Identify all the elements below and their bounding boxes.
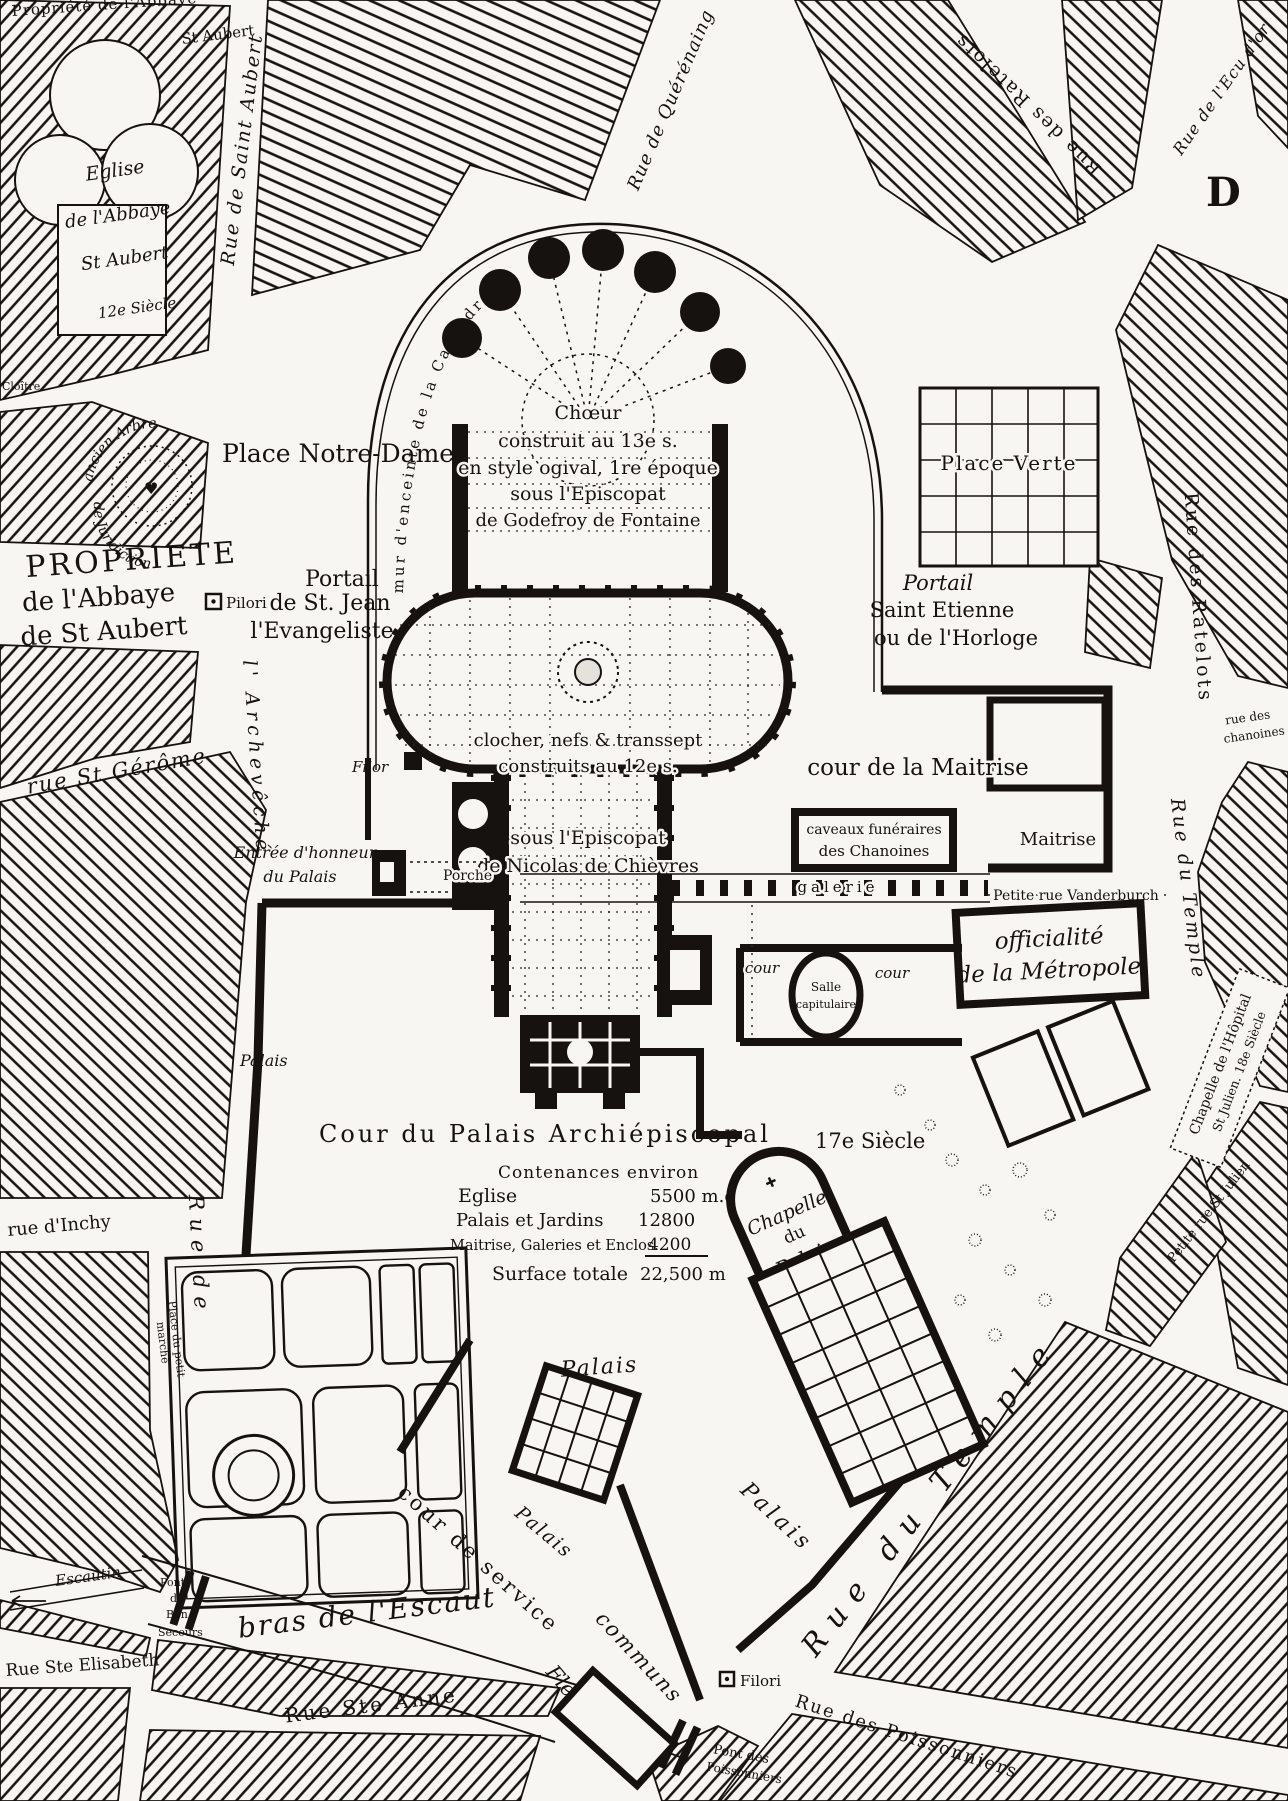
city-plan-map: Eglise de l'Abbaye St Aubert 12e Siècle … bbox=[0, 0, 1288, 1801]
chanoines-2: chanoines bbox=[1223, 723, 1286, 745]
contenances-row2-label: Maitrise, Galeries et Enclos. bbox=[450, 1238, 659, 1254]
street-ste-elisabeth: Rue Ste Elisabeth bbox=[5, 1650, 160, 1681]
propriete-line3: de St Aubert bbox=[19, 611, 188, 653]
nave-text-1: clocher, nefs & transsept bbox=[474, 730, 703, 751]
pilori-south: Filori bbox=[720, 1672, 781, 1690]
salle-capitulaire-1: Salle bbox=[811, 980, 841, 994]
escautin-label: Escautin bbox=[53, 1563, 122, 1590]
street-chanoines: rue des chanoines bbox=[1220, 706, 1285, 746]
portal-west-2: de St. Jean bbox=[269, 591, 390, 616]
portal-east-3: ou de l'Horloge bbox=[874, 626, 1038, 650]
contenances-total-value: 22,500 m bbox=[640, 1264, 726, 1285]
caveaux-line1: caveaux funéraires bbox=[806, 822, 941, 838]
contenances-total-label: Surface totale bbox=[492, 1263, 628, 1285]
palais-south1-label: Palais bbox=[510, 1501, 577, 1563]
map-page: Eglise de l'Abbaye St Aubert 12e Siècle … bbox=[0, 0, 1288, 1801]
choir-text-2: construit au 13e s. bbox=[498, 430, 678, 452]
palais-center-label: Palais bbox=[559, 1352, 639, 1382]
contenances-table: Contenances environ Eglise 5500 m.c. Pal… bbox=[450, 1163, 740, 1285]
contenances-row1-value: 12800 bbox=[638, 1210, 695, 1231]
pilori-west-label: Pilori bbox=[226, 594, 267, 612]
portal-east-2: Saint Etienne bbox=[870, 598, 1015, 622]
salle-capitulaire-2: capitulaire bbox=[796, 998, 856, 1011]
palais-grid-small bbox=[512, 1366, 637, 1500]
nave-text-3: sous l'Episcopat bbox=[510, 827, 666, 849]
contenances-row2-value: 4200 bbox=[648, 1235, 691, 1255]
chapter-cour-right: cour bbox=[875, 964, 910, 982]
marker-d: D bbox=[1206, 169, 1241, 216]
galerie-label: galerie bbox=[797, 878, 878, 896]
chanoines-1: rue des bbox=[1224, 707, 1271, 727]
contenances-row0-label: Eglise bbox=[458, 1185, 517, 1207]
nave-text-2: construits au 12e s. bbox=[498, 756, 677, 777]
palais-left-label: Palais bbox=[239, 1051, 288, 1070]
officialite-building: officialité de la Métropole bbox=[953, 903, 1145, 1005]
cathedral-choir: Chœur construit au 13e s. en style ogiva… bbox=[452, 402, 728, 592]
chapter-house: cour cour Salle capitulaire bbox=[740, 905, 962, 1042]
officialite-gardens bbox=[973, 1001, 1149, 1146]
tree-heart-icon: ♥ bbox=[144, 479, 158, 498]
portal-west-3: l'Evangeliste bbox=[250, 619, 393, 644]
portal-east-1: Portail bbox=[902, 571, 973, 595]
porche-label: Porche bbox=[443, 868, 492, 884]
contenances-title: Contenances environ bbox=[498, 1163, 699, 1183]
chapter-cour-left: cour bbox=[745, 959, 780, 977]
pont-bs-3: Bon bbox=[166, 1608, 188, 1621]
pilori-west: Pilori bbox=[206, 594, 267, 612]
cloitre-label: Cloître bbox=[2, 380, 40, 393]
place-verte-label: Place Verte bbox=[940, 451, 1077, 475]
siecle-17-label: 17e Siècle bbox=[815, 1129, 925, 1153]
filor-label: Filor bbox=[351, 758, 389, 776]
bras-escaut-label: bras de l'Escaut bbox=[236, 1580, 498, 1644]
palais-south2-label: Palais bbox=[734, 1477, 817, 1557]
choir-text-1: Chœur bbox=[555, 402, 623, 424]
propriete-line2: de l'Abbaye bbox=[21, 578, 176, 619]
place-verte: Place Verte bbox=[920, 388, 1098, 566]
choir-text-4: sous l'Episcopat bbox=[510, 483, 666, 505]
pont-bs-2: de bbox=[170, 1592, 184, 1605]
caveaux-line2: des Chanoines bbox=[819, 842, 930, 860]
enceinte-arc-label: mur d'enceinte de la Cathédrale bbox=[389, 273, 512, 593]
entree-honneur-2: du Palais bbox=[263, 867, 336, 886]
portal-west-1: Portail bbox=[305, 567, 379, 592]
cour-maitrise-label: cour de la Maitrise bbox=[807, 755, 1029, 781]
street-archeveche-1: Rue de bbox=[184, 1193, 214, 1317]
street-rue-inchy: rue d'Inchy bbox=[7, 1211, 113, 1241]
pont-bs-1: Pont bbox=[160, 1576, 186, 1589]
contenances-row1-label: Palais et Jardins bbox=[456, 1210, 604, 1231]
choir-text-5: de Godefroy de Fontaine bbox=[475, 510, 700, 531]
maitrise-label: Maitrise bbox=[1020, 829, 1096, 850]
choir-text-3: en style ogival, 1re époque bbox=[458, 457, 718, 479]
pont-bs-4: Secours bbox=[158, 1626, 203, 1639]
pilori-south-label: Filori bbox=[740, 1672, 781, 1690]
